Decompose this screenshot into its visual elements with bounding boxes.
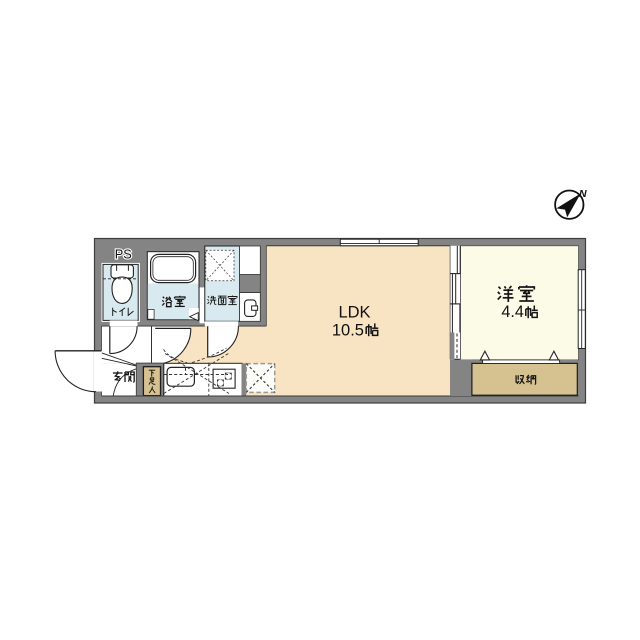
svg-text:PS: PS (115, 247, 132, 262)
svg-text:LDK: LDK (338, 303, 370, 321)
svg-text:N: N (579, 188, 587, 200)
svg-text:10.5: 10.5 (332, 322, 364, 340)
svg-text:4.4: 4.4 (501, 303, 524, 321)
